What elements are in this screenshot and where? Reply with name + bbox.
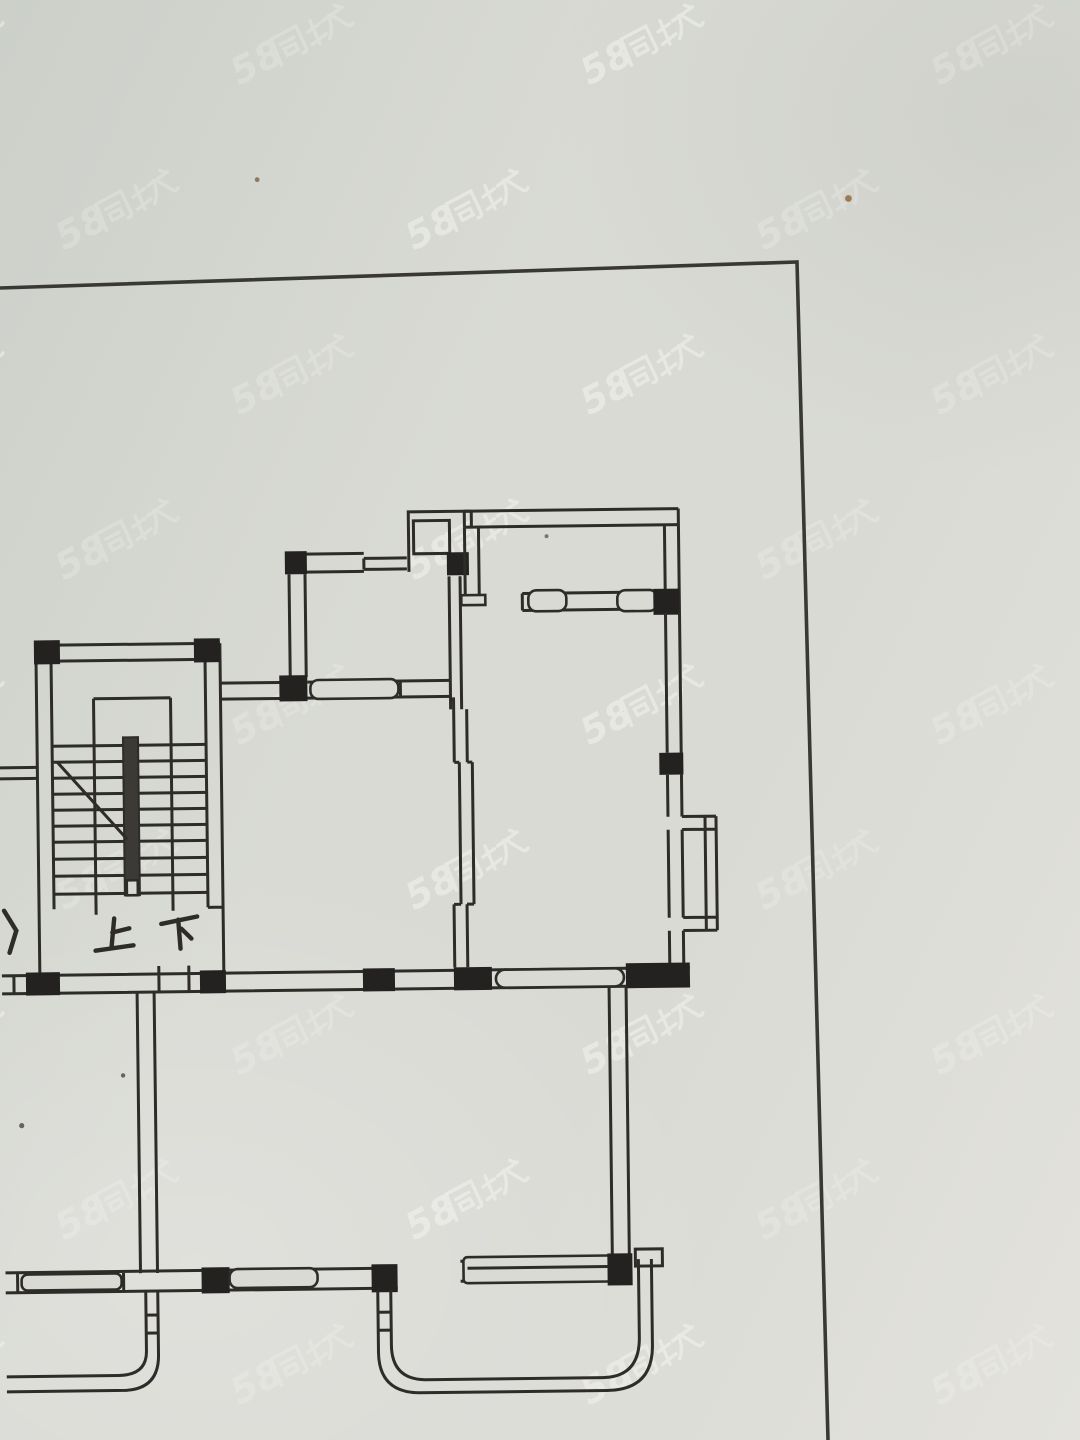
watermark-58tongcheng <box>573 0 708 94</box>
floor-plan-photo: 58 <box>0 0 1080 1440</box>
door-jamb <box>461 595 485 605</box>
stair-rail <box>123 737 140 895</box>
west-window-stub <box>0 767 37 778</box>
floor-plan-drawing: 58 <box>0 0 1080 1440</box>
watermark-58tongcheng <box>0 0 8 94</box>
main-cross-wall <box>2 962 690 995</box>
watermark-58tongcheng <box>48 820 183 919</box>
watermark-58tongcheng <box>0 985 8 1084</box>
watermark-58tongcheng <box>923 325 1058 424</box>
balcony-left <box>6 1291 159 1392</box>
watermark-58tongcheng <box>748 1150 883 1249</box>
middle-right-room <box>451 612 718 967</box>
watermark-58tongcheng <box>573 325 708 424</box>
watermark-58tongcheng <box>0 325 8 424</box>
window-south <box>310 679 398 699</box>
watermark-58tongcheng <box>223 985 358 1084</box>
watermark-58tongcheng <box>0 655 8 754</box>
stair-rail-cap <box>127 880 138 895</box>
watermark-58tongcheng <box>0 1315 8 1414</box>
bay-window <box>682 816 717 930</box>
watermark-58tongcheng <box>398 160 533 259</box>
watermark-58tongcheng <box>573 655 708 754</box>
watermark-58tongcheng <box>48 160 183 259</box>
staircase: 上 下 <box>34 638 224 976</box>
watermark-58tongcheng <box>48 1150 183 1249</box>
watermark-58tongcheng <box>223 1315 358 1414</box>
watermark-58tongcheng <box>923 655 1058 754</box>
window-sw <box>22 1273 122 1290</box>
label-down: 下 <box>161 916 197 948</box>
watermark-58tongcheng <box>48 490 183 589</box>
watermark-58tongcheng <box>923 1315 1058 1414</box>
paper-specks <box>8 170 864 1128</box>
label-up: 上 <box>95 918 133 950</box>
watermark-58tongcheng <box>923 985 1058 1084</box>
edge-mark <box>4 911 17 953</box>
lower-rooms <box>2 986 633 1297</box>
watermark-58tongcheng <box>398 1150 533 1249</box>
watermark-58tongcheng <box>398 820 533 919</box>
window-2 <box>617 590 657 611</box>
window-long <box>496 968 624 988</box>
watermark-58tongcheng <box>748 490 883 589</box>
watermark-layer <box>0 0 1080 1414</box>
window-s1 <box>229 1268 317 1288</box>
stair-break-line <box>57 761 127 840</box>
upper-right-room <box>460 509 679 618</box>
watermark-58tongcheng <box>923 0 1058 94</box>
watermark-58tongcheng <box>223 0 358 94</box>
watermark-58tongcheng <box>223 325 358 424</box>
window-1 <box>528 590 566 611</box>
watermark-58tongcheng <box>748 160 883 259</box>
watermark-58tongcheng <box>573 985 708 1084</box>
